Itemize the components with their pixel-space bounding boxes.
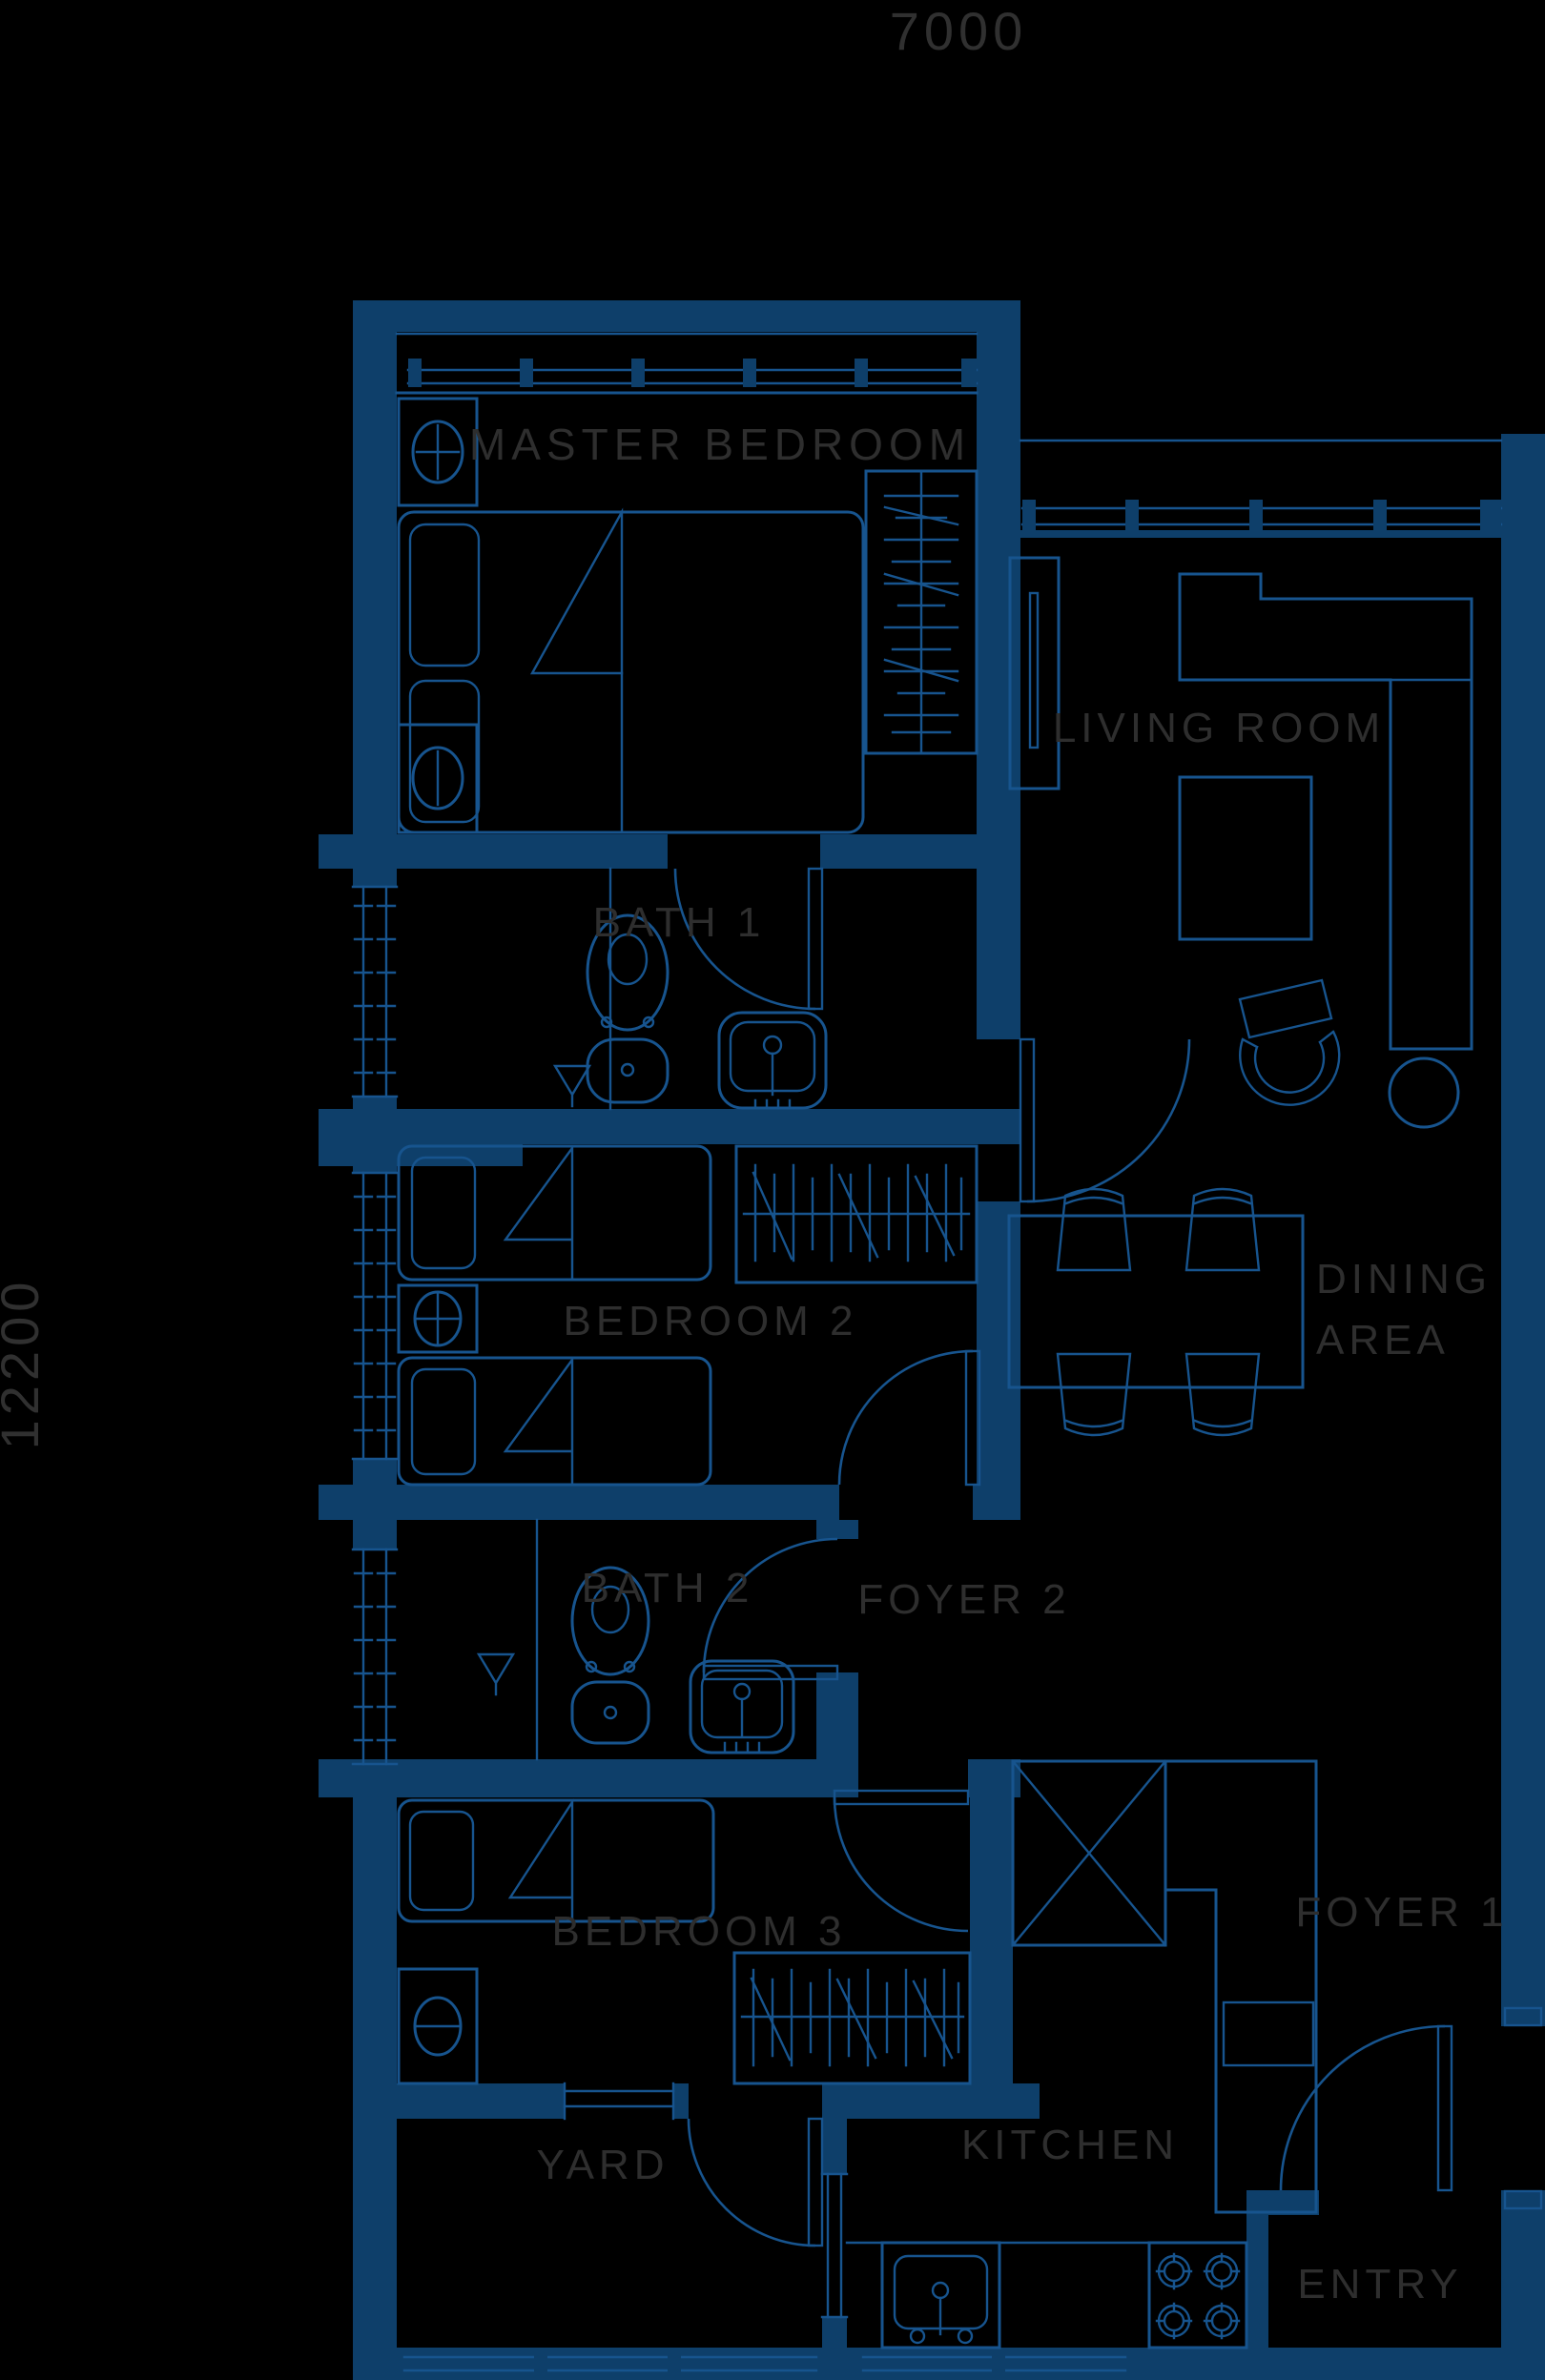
height-dimension: 12200 [0, 1278, 50, 1450]
hall-cabinet [1165, 1761, 1316, 2212]
foyer2-label: FOYER 2 [857, 1576, 1070, 1623]
room-bedroom3: BEDROOM 3 [399, 1800, 970, 2083]
window-bath2 [353, 1549, 397, 1764]
burner [1157, 2304, 1191, 2338]
master-bedroom-label: MASTER BEDROOM [469, 420, 971, 469]
room-yard: YARD [537, 2142, 669, 2188]
width-dimension: 7000 [890, 1, 1028, 61]
dining-chair-icon [1058, 1189, 1130, 1270]
dining-area-label-line2: AREA [1316, 1317, 1450, 1364]
window-master-bedroom [397, 334, 977, 393]
window-bedroom2 [353, 1173, 397, 1459]
bedroom2-label: BEDROOM 2 [563, 1298, 857, 1344]
table-lamp-icon [413, 421, 463, 482]
foyer1-label: FOYER 1 [1295, 1889, 1508, 1936]
shower-drain-icon [479, 1654, 513, 1694]
duct-shaft-icon [1013, 1761, 1165, 1945]
dining-chair-icon [1186, 1189, 1259, 1270]
floor-plan-svg: MASTER BEDROOM LIVING ROOM [0, 0, 1545, 2380]
yard-label: YARD [537, 2142, 669, 2188]
window-living-room [1020, 441, 1501, 538]
pillow [412, 1369, 475, 1474]
burner [1205, 2254, 1239, 2288]
fridge-icon [1224, 2002, 1313, 2065]
round-armchair-icon [1240, 980, 1339, 1105]
door-foyer2-dining [1020, 1039, 1189, 1201]
wardrobe-icon [734, 1953, 970, 2083]
door-bedroom2 [839, 1351, 979, 1485]
pillow [410, 524, 479, 666]
dining-area-label-line1: DINING [1316, 1256, 1492, 1303]
table-lamp-icon [415, 1292, 461, 1345]
door-entry [1281, 2008, 1541, 2208]
window-yard-kitchen-divider [822, 2174, 847, 2317]
bedroom3-label: BEDROOM 3 [551, 1908, 846, 1955]
wardrobe-icon [736, 1146, 977, 1282]
dining-chair-icon [1186, 1354, 1259, 1435]
washbasin-icon [690, 1661, 793, 1753]
side-table-icon [1390, 1058, 1458, 1127]
single-bed-icon [399, 1800, 713, 1921]
wardrobe-icon [866, 471, 977, 753]
bath2-label: BATH 2 [582, 1565, 754, 1611]
room-entry: ENTRY [1297, 2261, 1462, 2308]
room-bedroom2: BEDROOM 2 [399, 1146, 977, 1485]
door-bedroom3 [834, 1791, 968, 1931]
gas-stove-icon [1149, 2243, 1246, 2348]
washbasin-icon [719, 1013, 826, 1108]
burner [1205, 2304, 1239, 2338]
single-bed-icon [399, 1358, 711, 1485]
doors [675, 869, 1541, 2246]
dining-area: DINING AREA [1009, 1189, 1492, 1435]
window-bedroom3-yard [565, 2083, 673, 2119]
room-bath2: BATH 2 [479, 1520, 793, 1759]
room-bath1: BATH 1 [555, 869, 826, 1109]
living-room-label: LIVING ROOM [1053, 705, 1385, 751]
coffee-table-icon [1180, 777, 1311, 939]
table-lamp-icon [413, 748, 463, 809]
room-living-room: LIVING ROOM [1010, 558, 1472, 1127]
dining-chair-icon [1058, 1354, 1130, 1435]
bath1-label: BATH 1 [593, 899, 766, 946]
sectional-sofa-icon [1180, 574, 1472, 1049]
double-bed-icon [399, 512, 863, 832]
room-kitchen: KITCHEN [847, 2122, 1246, 2348]
pillow [410, 1812, 473, 1910]
burner [1157, 2254, 1191, 2288]
room-master-bedroom: MASTER BEDROOM [399, 399, 977, 832]
shower-drain-icon [555, 1066, 589, 1106]
floor-plan-page: MASTER BEDROOM LIVING ROOM [0, 0, 1545, 2380]
kitchen-label: KITCHEN [961, 2122, 1179, 2168]
pillow [412, 1158, 475, 1268]
table-lamp-icon [415, 1998, 461, 2055]
kitchen-sink-icon [882, 2243, 999, 2348]
entry-label: ENTRY [1297, 2261, 1462, 2308]
window-bath1 [353, 887, 397, 1097]
door-yard [689, 2119, 822, 2246]
